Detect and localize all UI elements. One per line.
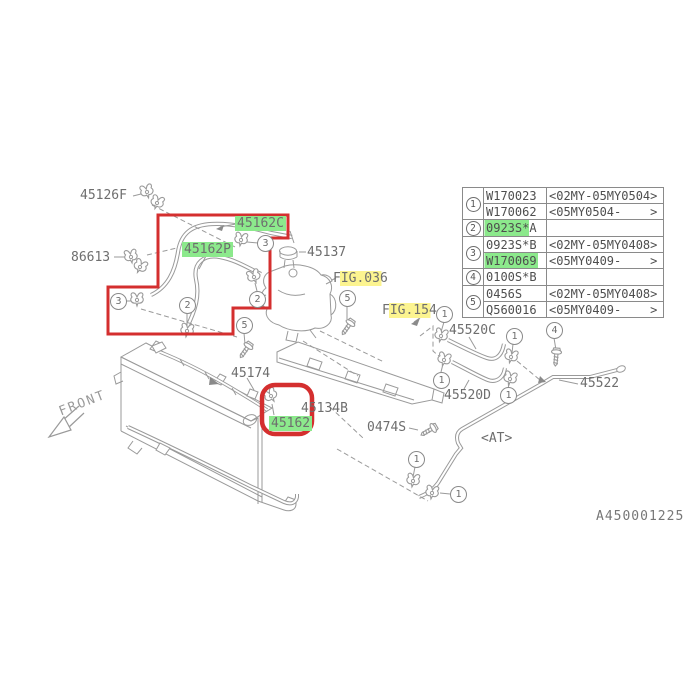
parts-diagram-page: 45126F 86613 45162C 45162P 45137 FIG.036… (0, 0, 700, 700)
model-range-cell: <05MY0409- > (547, 302, 664, 318)
callout-1: 1 (500, 387, 517, 404)
part-label-45174: 45174 (231, 366, 270, 381)
callout-1: 1 (408, 451, 425, 468)
part-number-cell[interactable]: 0456S (484, 286, 547, 302)
model-range-cell: <05MY0504- > (547, 204, 664, 220)
table-row: W170062 <05MY0504- > (463, 204, 664, 220)
part-label-45522: 45522 (580, 376, 619, 391)
drawing-number: A450001225 (596, 509, 684, 524)
part-label-45520d: 45520D (444, 388, 491, 403)
part-label-45126f: 45126F (80, 188, 127, 203)
ref-cell: 2 (463, 220, 484, 237)
ref-cell: 4 (463, 269, 484, 286)
ref-circle-2: 2 (466, 221, 481, 236)
callout-1: 1 (450, 486, 467, 503)
ref-circle-4: 4 (466, 270, 481, 285)
callout-2: 2 (249, 291, 266, 308)
model-range-cell: <02MY-05MY0408> (547, 286, 664, 302)
figure-ref-036[interactable]: FIG.036 (333, 271, 388, 286)
parts-reference-table: 1 W170023 <02MY-05MY0504> W170062 <05MY0… (462, 187, 664, 318)
part-label-86613: 86613 (71, 250, 110, 265)
part-number-cell-highlighted[interactable]: 0923S*A (484, 220, 547, 237)
callout-5: 5 (236, 317, 253, 334)
callout-3: 3 (257, 235, 274, 252)
model-range-cell: <02MY-05MY0504> (547, 188, 664, 204)
ref-circle-3: 3 (466, 246, 481, 261)
part-number-cell-highlighted[interactable]: W170069 (484, 253, 547, 269)
callout-3: 3 (110, 293, 127, 310)
ref-cell: 3 (463, 237, 484, 269)
part-number-cell[interactable]: W170062 (484, 204, 547, 220)
table-row: W170069 <05MY0409- > (463, 253, 664, 269)
table-row: 3 0923S*B <02MY-05MY0408> (463, 237, 664, 253)
ref-circle-1: 1 (466, 197, 481, 212)
callout-5: 5 (339, 290, 356, 307)
table-row: 1 W170023 <02MY-05MY0504> (463, 188, 664, 204)
part-number-cell[interactable]: 0923S*B (484, 237, 547, 253)
figure-ref-154[interactable]: FIG.154 (382, 303, 437, 318)
part-label-45162p-highlighted[interactable]: 45162P (182, 242, 233, 257)
table-row: 5 0456S <02MY-05MY0408> (463, 286, 664, 302)
callout-2: 2 (179, 297, 196, 314)
part-label-45162-highlighted[interactable]: 45162 (269, 416, 312, 431)
table-row: 2 0923S*A (463, 220, 664, 237)
ref-cell: 5 (463, 286, 484, 318)
table-row: 4 0100S*B (463, 269, 664, 286)
table-row: Q560016 <05MY0409- > (463, 302, 664, 318)
part-number-cell[interactable]: 0100S*B (484, 269, 547, 286)
callout-4: 4 (546, 322, 563, 339)
ref-cell: 1 (463, 188, 484, 220)
part-label-45520c: 45520C (449, 323, 496, 338)
front-direction-label: FRONT (57, 388, 108, 420)
transmission-note-at: <AT> (481, 431, 512, 446)
part-number-cell[interactable]: W170023 (484, 188, 547, 204)
callout-1: 1 (506, 328, 523, 345)
part-number-cell[interactable]: Q560016 (484, 302, 547, 318)
ref-circle-5: 5 (466, 295, 481, 310)
callout-1: 1 (436, 306, 453, 323)
labels-layer: 45126F 86613 45162C 45162P 45137 FIG.036… (0, 0, 700, 700)
part-label-45162c-highlighted[interactable]: 45162C (235, 216, 286, 231)
model-range-cell (547, 269, 664, 286)
model-range-cell: <02MY-05MY0408> (547, 237, 664, 253)
part-label-45137: 45137 (307, 245, 346, 260)
callout-1: 1 (433, 372, 450, 389)
part-label-0474s: 0474S (367, 420, 406, 435)
part-label-45134b: 45134B (301, 401, 348, 416)
model-range-cell (547, 220, 664, 237)
model-range-cell: <05MY0409- > (547, 253, 664, 269)
